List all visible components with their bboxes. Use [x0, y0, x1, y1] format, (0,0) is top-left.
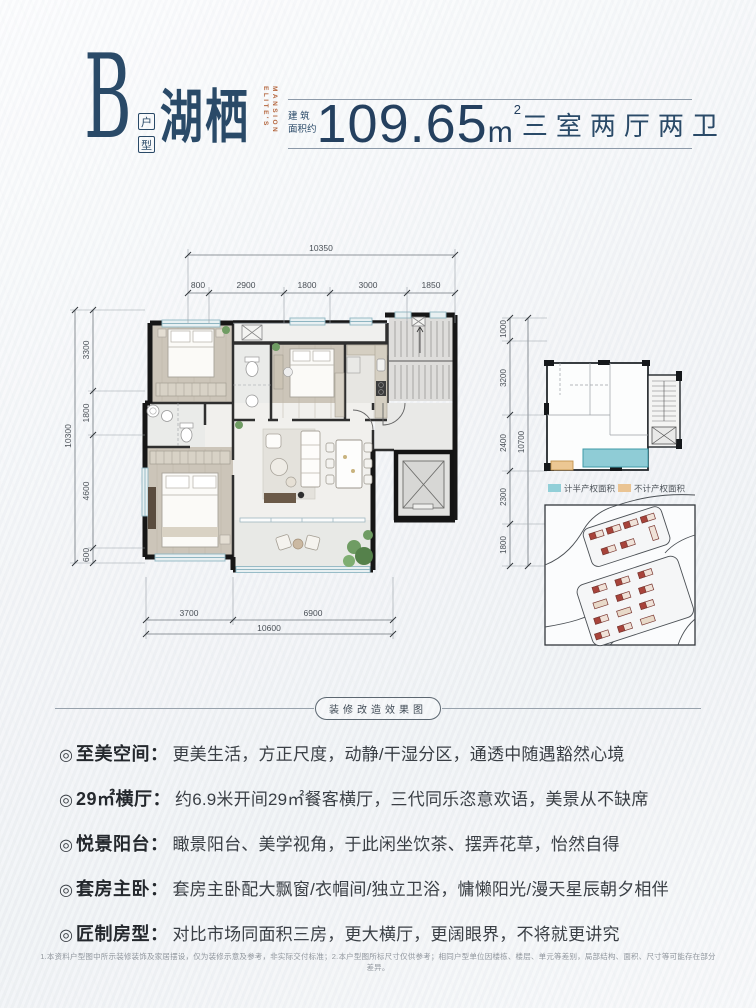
key-plan-elevator [652, 427, 676, 444]
feature-item: ◎ 套房主卧 ： 套房主卧配大飘窗/衣帽间/独立卫浴，慵懒阳光/漫天星辰朝夕相伴 [59, 875, 707, 901]
svg-text:3700: 3700 [180, 608, 199, 618]
tv-cabinet [264, 493, 296, 503]
divider-badge: 装修改造效果图 [315, 697, 441, 720]
legend-swatch-half-property [548, 484, 561, 492]
ring-bullet-icon: ◎ [59, 835, 73, 855]
area-value: 109.65m2 [317, 97, 522, 151]
area-label: 建 筑 面积约 [288, 111, 317, 137]
ring-bullet-icon: ◎ [59, 745, 73, 765]
dimensions-left: 10300 3300 1800 4600 600 [63, 307, 145, 566]
plant [235, 421, 243, 429]
plan-name-english: ELITE'S MANSION [262, 86, 278, 158]
svg-text:800: 800 [191, 280, 205, 290]
svg-text:1000: 1000 [499, 320, 508, 338]
dimensions-bottom: 3700 6900 10600 [143, 577, 396, 639]
svg-text:600: 600 [81, 548, 91, 562]
area-header: 建 筑 面积约 109.65m2 三室两厅两卫 [288, 99, 692, 149]
dresser [148, 487, 156, 529]
half-property-area [583, 449, 648, 467]
svg-text:3000: 3000 [359, 280, 378, 290]
site-plan [545, 495, 696, 648]
svg-text:1800: 1800 [298, 280, 317, 290]
plan-name: 湖栖 [160, 84, 250, 151]
unit-type-char: 户 [138, 113, 155, 130]
floor-plan [142, 312, 455, 573]
svg-text:10300: 10300 [63, 424, 73, 448]
legend-label-no-property: 不计产权面积 [634, 484, 686, 494]
dining-set [326, 440, 372, 488]
plan-graphics: 10350 800 2900 1800 3000 1850 10300 3300… [50, 235, 710, 660]
unit-type-letter: B [84, 40, 132, 156]
armchair [266, 434, 281, 448]
svg-text:1800: 1800 [499, 536, 508, 554]
room-layout-text: 三室两厅两卫 [522, 106, 726, 143]
feature-item: ◎ 匠制房型 ： 对比市场同面积三房，更大横厅，更阔眼界，不将就更讲究 [59, 920, 707, 946]
elevator [396, 452, 452, 518]
no-property-area [551, 461, 573, 470]
floor-lamp [298, 492, 304, 498]
svg-text:2900: 2900 [237, 280, 256, 290]
svg-text:3200: 3200 [499, 369, 508, 387]
legend-swatch-no-property [618, 484, 631, 492]
coffee-table [271, 459, 288, 476]
svg-text:1800: 1800 [81, 403, 91, 422]
ring-bullet-icon: ◎ [59, 925, 73, 945]
svg-text:10700: 10700 [517, 430, 526, 453]
sofa [301, 431, 320, 487]
plant [272, 343, 280, 351]
feature-item: ◎ 至美空间 ： 更美生活，方正尺度，动静/干湿分区，通透中随遇豁然心境 [59, 740, 707, 766]
svg-text:10350: 10350 [309, 243, 333, 253]
unit-type-char: 型 [138, 136, 155, 153]
svg-text:2300: 2300 [499, 488, 508, 506]
svg-text:10600: 10600 [257, 623, 281, 633]
ring-bullet-icon: ◎ [59, 880, 73, 900]
svg-text:6900: 6900 [304, 608, 323, 618]
floor-plan-poster: B 户 型 湖栖 ELITE'S MANSION 建 筑 面积约 109.65m… [0, 0, 756, 1008]
plant [222, 326, 230, 334]
feature-item: ◎ 悦景阳台 ： 瞰景阳台、美学视角，于此闲坐饮茶、摆弄花草，怡然自得 [59, 830, 707, 856]
svg-text:2400: 2400 [499, 434, 508, 452]
ring-bullet-icon: ◎ [59, 790, 73, 810]
dimensions-top: 10350 800 2900 1800 3000 1850 [185, 243, 458, 323]
feature-list: ◎ 至美空间 ： 更美生活，方正尺度，动静/干湿分区，通透中随遇豁然心境 ◎ 2… [59, 740, 707, 965]
unit-type-label: 户 型 [138, 113, 155, 153]
key-plan [544, 360, 682, 471]
section-divider: 装修改造效果图 [55, 697, 701, 720]
svg-text:3300: 3300 [81, 340, 91, 359]
dimensions-key-plan: 1000 3200 2400 2300 1800 10700 [499, 315, 547, 569]
disclaimer-text: 1.本资料户型图中所示装修装饰及家居摆设，仅为装修示意及参考，非实际交付标准；2… [40, 951, 716, 973]
legend-label-half-property: 计半产权面积 [564, 484, 616, 494]
svg-text:1850: 1850 [422, 280, 441, 290]
area-legend: 计半产权面积 不计产权面积 [548, 484, 686, 494]
feature-item: ◎ 29㎡横厅 ： 约6.9米开间29㎡餐客横厅，三代同乐恣意欢语，美景从不缺席 [59, 785, 707, 811]
svg-text:4600: 4600 [81, 481, 91, 500]
